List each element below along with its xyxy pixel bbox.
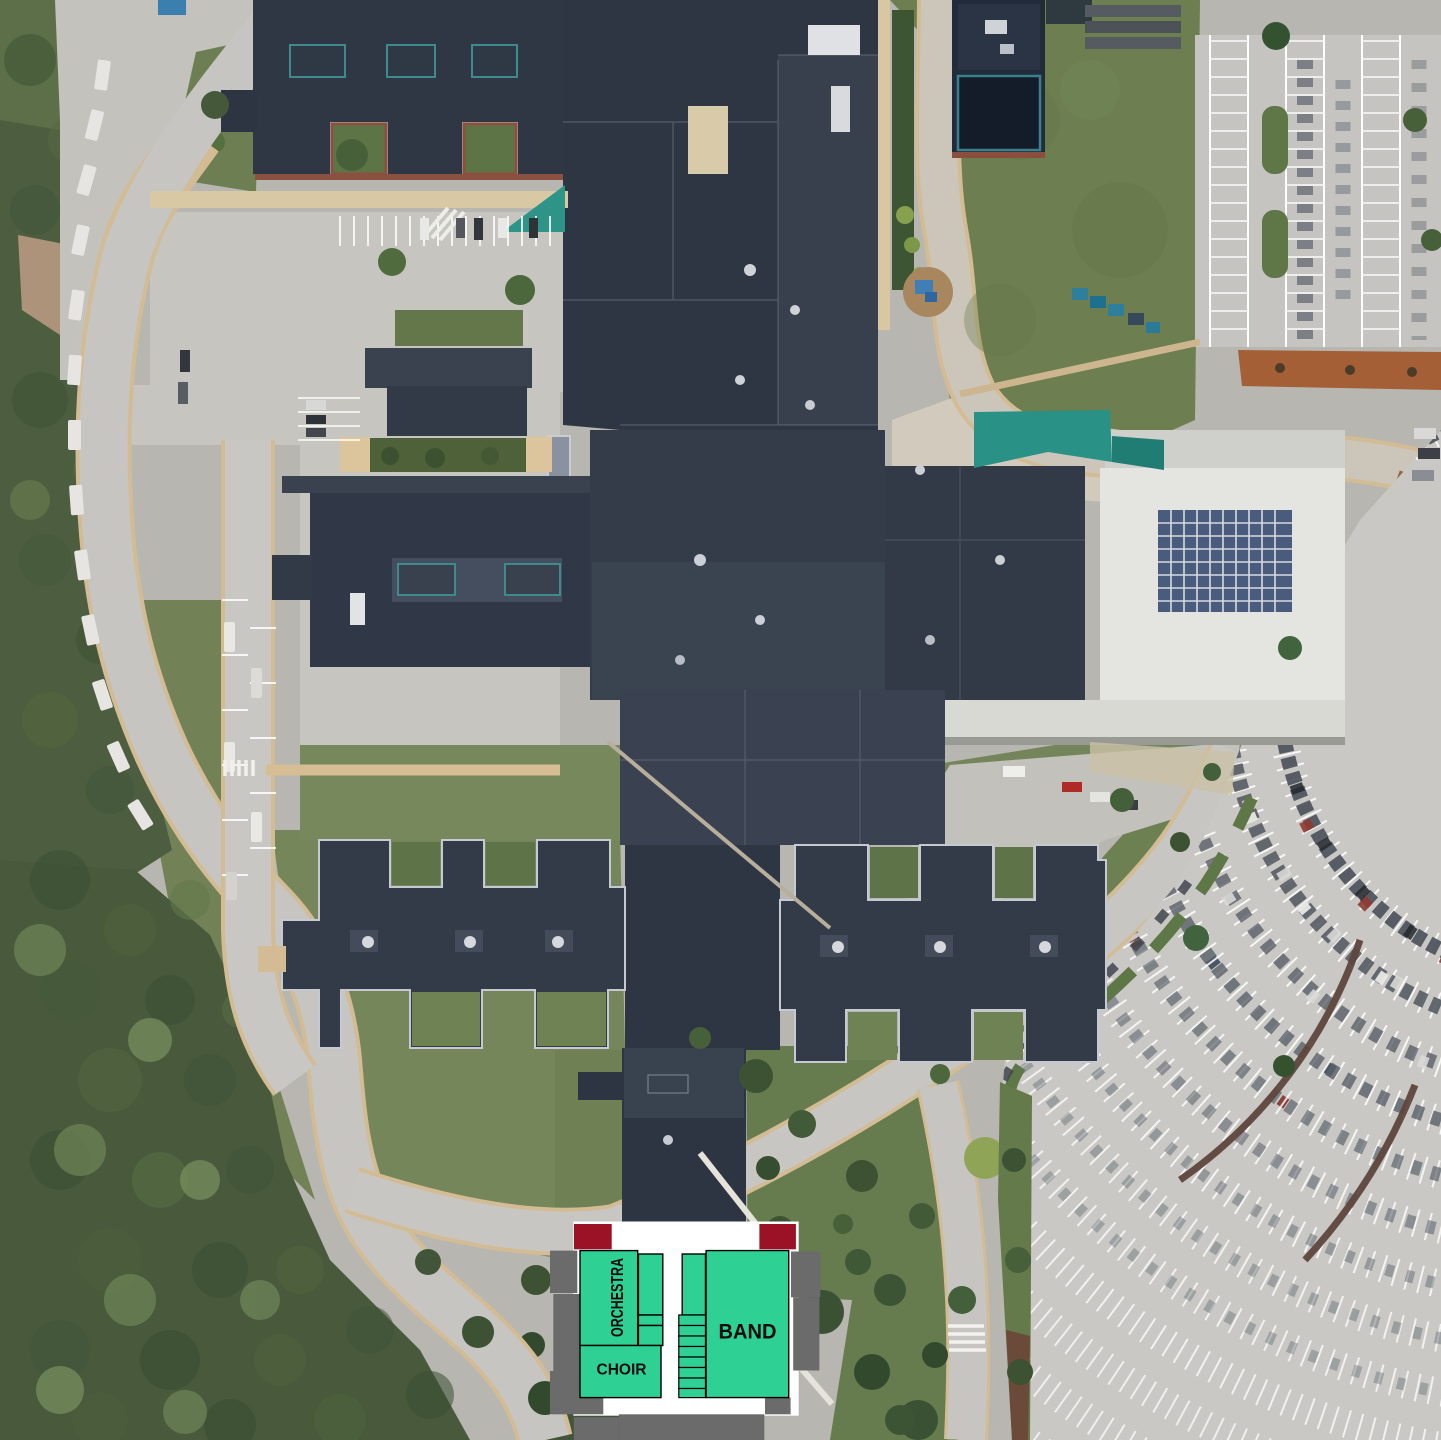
svg-text:ORCHESTRA: ORCHESTRA — [607, 1258, 627, 1337]
svg-text:CHOIR: CHOIR — [597, 1362, 647, 1379]
svg-text:BAND: BAND — [719, 1321, 777, 1344]
